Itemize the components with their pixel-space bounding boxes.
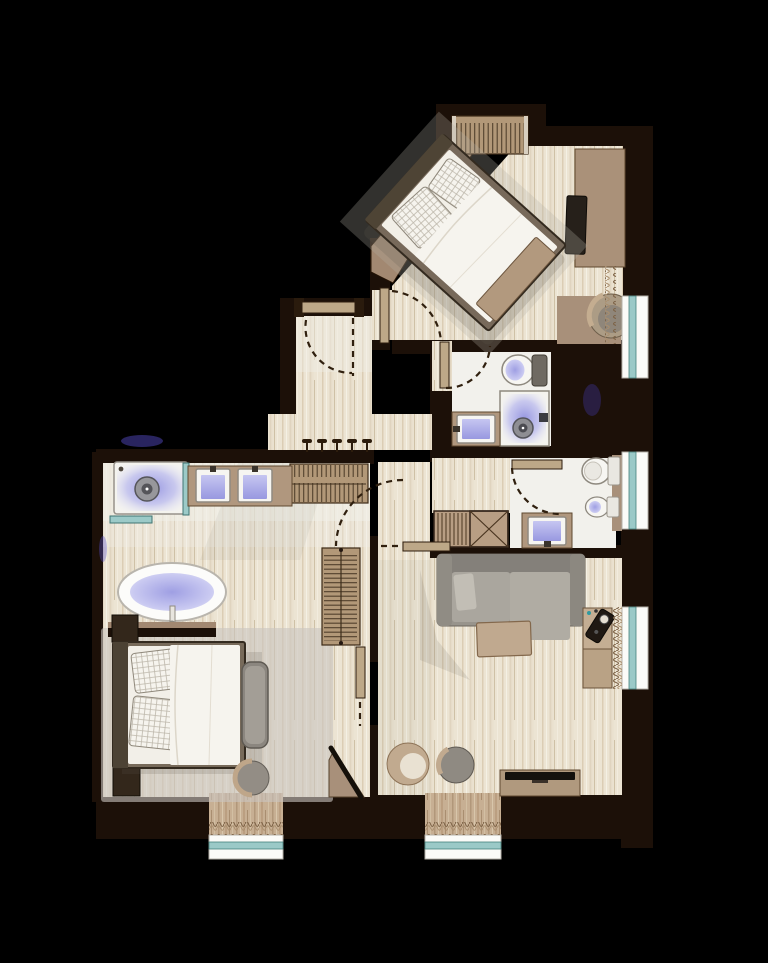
floor-plan-canvas [0, 0, 768, 963]
pouf-top [400, 753, 426, 779]
bench-cushion [245, 666, 265, 744]
wall [430, 446, 625, 458]
door-leaf [380, 288, 389, 343]
sink-basin [201, 475, 225, 499]
toilet-tank [608, 457, 620, 485]
soap-niche [539, 413, 548, 422]
counter-dot [587, 611, 591, 615]
curtain [425, 822, 501, 835]
render-artifact [121, 435, 163, 447]
bed-duvet [170, 645, 240, 765]
curtain [605, 266, 616, 344]
toilet-bowl [585, 462, 602, 480]
light-wash [296, 316, 372, 372]
floor-landing [432, 458, 510, 513]
window-glass [629, 452, 636, 529]
toilet-tank [532, 355, 547, 386]
window-glass [209, 842, 283, 849]
nightstand [112, 615, 138, 642]
bathtub-water [130, 573, 214, 611]
render-artifact [583, 384, 601, 416]
curtain [209, 822, 283, 835]
shower-head-dot [146, 488, 149, 491]
window-glass [425, 842, 501, 849]
faucet [544, 541, 551, 547]
shower-head-dot [522, 427, 525, 430]
faucet [210, 466, 216, 472]
door-leaf [302, 302, 355, 313]
counter-dot [594, 609, 598, 613]
faucet [252, 466, 258, 472]
tv-stand [532, 780, 548, 783]
shower-glass [110, 516, 152, 523]
sink-basin [462, 419, 490, 439]
wardrobe-knob [339, 548, 343, 552]
render-artifact [99, 536, 107, 562]
door-leaf [440, 342, 449, 388]
window-glass [629, 296, 636, 378]
bidet-tank [607, 497, 619, 517]
sofa-arm [437, 554, 452, 626]
bathtub-faucet [170, 606, 175, 622]
floor-hall-lower [268, 414, 432, 450]
faucet [453, 426, 460, 432]
wardrobe-knob [339, 641, 343, 645]
shower-drain [119, 467, 124, 472]
sofa-back [441, 554, 581, 573]
sink-basin [243, 475, 267, 499]
kitchenette-counter [583, 649, 612, 688]
bed-headboard [113, 642, 128, 768]
door-leaf [512, 460, 562, 469]
door-leaf [403, 542, 450, 551]
radiator-cap [524, 116, 528, 154]
floor-plan [0, 0, 768, 963]
curtain [611, 607, 622, 689]
window-glass [629, 607, 636, 689]
bidet-water [589, 501, 601, 513]
door-leaf [356, 647, 365, 698]
wall [280, 313, 296, 417]
coffee-table [476, 621, 531, 657]
toilet-water [506, 360, 525, 381]
tv-screen [505, 772, 575, 780]
sink-basin [533, 521, 561, 541]
sofa-pillow [453, 573, 477, 611]
